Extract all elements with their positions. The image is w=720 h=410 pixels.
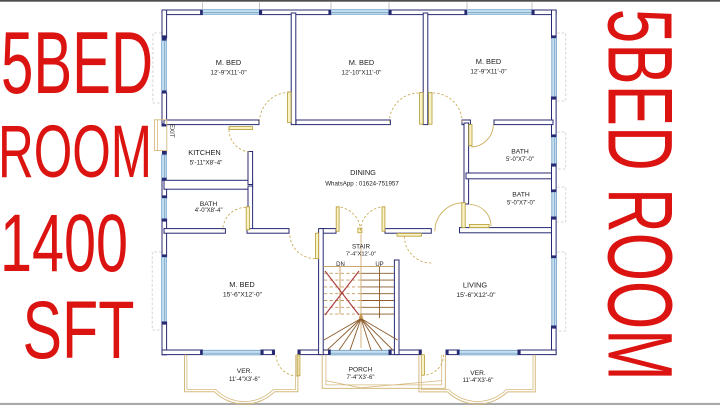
- svg-text:BATH: BATH: [512, 191, 530, 198]
- svg-text:VER.: VER.: [470, 370, 486, 377]
- svg-text:15'-6"X12'-0": 15'-6"X12'-0": [456, 292, 496, 299]
- svg-text:11'-4"X3'-6": 11'-4"X3'-6": [463, 378, 494, 384]
- svg-text:11'-4"X3'-6": 11'-4"X3'-6": [229, 377, 260, 383]
- svg-text:12'-9"X11'-0": 12'-9"X11'-0": [210, 70, 246, 77]
- svg-text:DINING: DINING: [350, 168, 376, 177]
- svg-text:7'-4"X3'-6": 7'-4"X3'-6": [347, 375, 375, 381]
- svg-text:5'-0"X7'-0": 5'-0"X7'-0": [507, 200, 535, 206]
- svg-text:M. BED: M. BED: [229, 280, 254, 289]
- svg-text:M. BED: M. BED: [216, 58, 241, 67]
- svg-text:5'-11"X8'-4": 5'-11"X8'-4": [190, 159, 223, 166]
- svg-text:M. BED: M. BED: [349, 58, 374, 67]
- svg-text:BATH: BATH: [511, 148, 529, 155]
- svg-text:5'-0"X7'-0": 5'-0"X7'-0": [506, 157, 534, 163]
- svg-text:5BED ROOM: 5BED ROOM: [589, 9, 691, 381]
- svg-text:UP: UP: [375, 262, 383, 268]
- svg-text:M. BED: M. BED: [476, 57, 501, 66]
- svg-text:1400: 1400: [0, 198, 128, 289]
- svg-text:DN: DN: [336, 262, 345, 268]
- svg-text:12'-9"X11'-0": 12'-9"X11'-0": [470, 69, 506, 76]
- svg-text:7'-4"X12'-0": 7'-4"X12'-0": [346, 252, 376, 258]
- svg-text:LIVING: LIVING: [463, 280, 487, 289]
- svg-text:KITCHEN: KITCHEN: [188, 148, 220, 157]
- svg-text:EXIT: EXIT: [168, 124, 175, 138]
- svg-text:ROOM: ROOM: [0, 110, 152, 193]
- svg-text:4'-0"X8'-4": 4'-0"X8'-4": [195, 208, 223, 214]
- svg-text:15'-6"X12'-0": 15'-6"X12'-0": [223, 291, 263, 298]
- svg-text:WhatsApp : 01624-751957: WhatsApp : 01624-751957: [325, 181, 399, 188]
- svg-text:5BED: 5BED: [1, 13, 153, 112]
- svg-text:SFT: SFT: [23, 285, 135, 376]
- svg-text:PORCH: PORCH: [349, 367, 373, 374]
- svg-text:VER.: VER.: [237, 368, 253, 375]
- svg-text:12'-10"X11'-0": 12'-10"X11'-0": [342, 70, 382, 77]
- svg-text:STAIR: STAIR: [352, 243, 371, 250]
